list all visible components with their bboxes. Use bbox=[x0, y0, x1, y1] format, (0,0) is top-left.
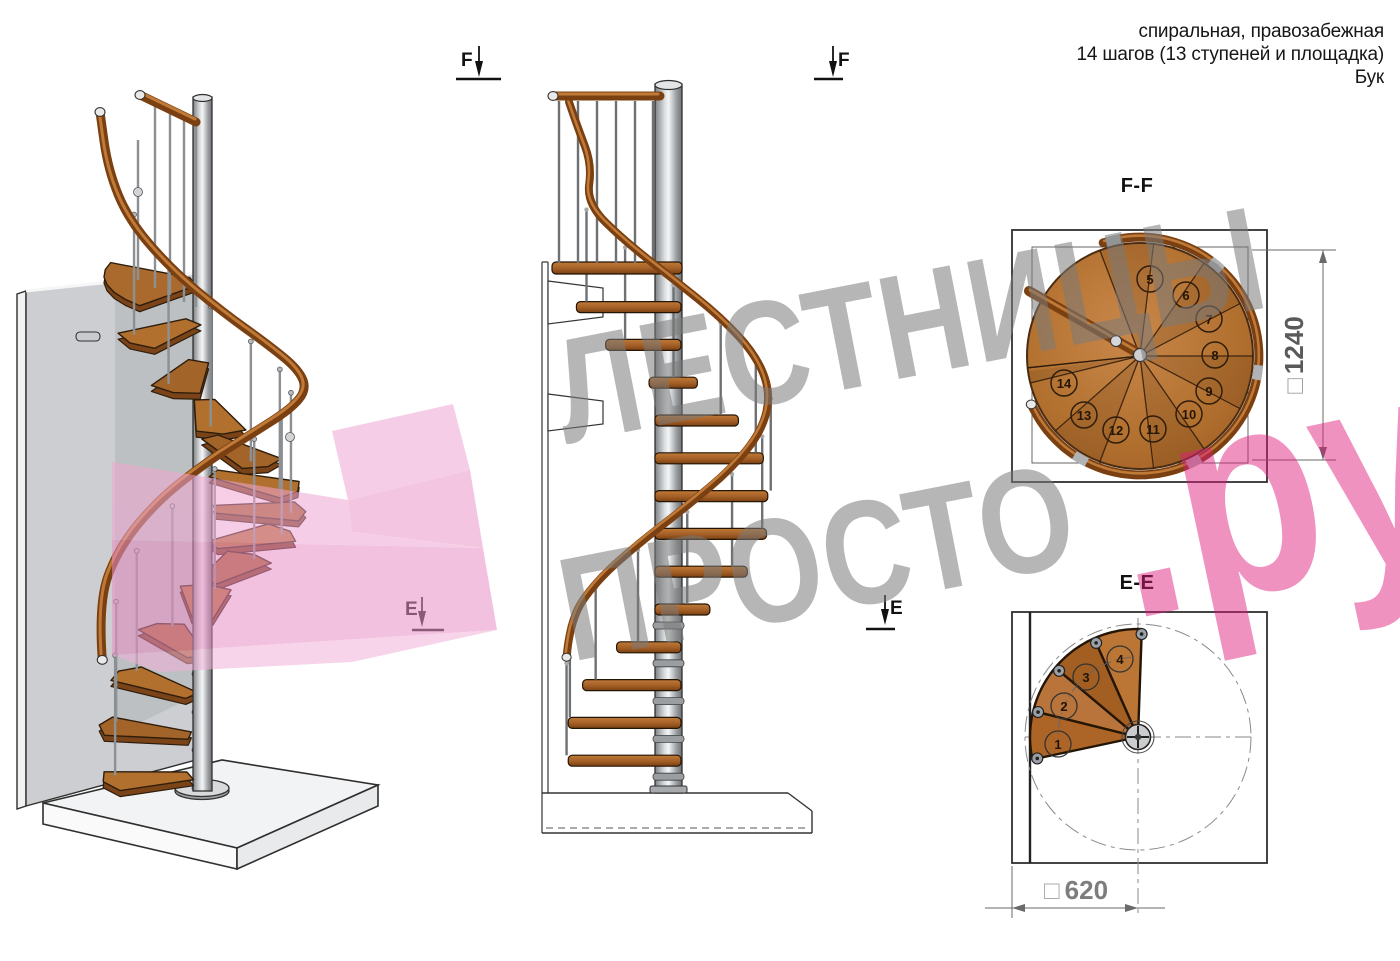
svg-text:11: 11 bbox=[1146, 422, 1160, 437]
spec-line-steps: 14 шагов (13 ступеней и площадка) bbox=[1077, 43, 1385, 66]
spec-text-block: спиральная, правозабежная 14 шагов (13 с… bbox=[1077, 20, 1385, 89]
marker-letter: E bbox=[890, 598, 903, 619]
svg-text:13: 13 bbox=[1077, 408, 1091, 423]
dim-arrow-icon bbox=[1012, 904, 1025, 912]
section-marker-f-right: F bbox=[814, 46, 850, 79]
svg-text:5: 5 bbox=[1146, 272, 1153, 287]
section-marker-e-left: E bbox=[405, 597, 444, 630]
elevation-view bbox=[542, 81, 812, 834]
plan-ff-view: F-F 5 6 7 8 9 10 11 12 13 14 □1240 bbox=[1012, 175, 1336, 482]
svg-text:□1240: □1240 bbox=[1279, 316, 1309, 394]
dim-arrow-icon bbox=[1319, 250, 1327, 263]
technical-drawing: F F E E F-F 5 6 7 8 9 10 11 bbox=[0, 0, 1400, 961]
pole-flange bbox=[1122, 721, 1154, 753]
svg-text:10: 10 bbox=[1182, 407, 1196, 422]
section-marker-e-right: E bbox=[866, 595, 903, 629]
svg-text:4: 4 bbox=[1116, 652, 1124, 667]
section-title: E-E bbox=[1120, 572, 1155, 594]
drawing-sheet: F F E E F-F 5 6 7 8 9 10 11 bbox=[0, 0, 1400, 961]
svg-text:14: 14 bbox=[1057, 376, 1072, 391]
marker-letter: F bbox=[838, 50, 850, 71]
wall-rail-bracket bbox=[76, 332, 100, 341]
dimension-1240: □1240 bbox=[1252, 250, 1336, 460]
section-title: F-F bbox=[1121, 175, 1154, 197]
marker-letter: F bbox=[461, 50, 473, 71]
svg-text:8: 8 bbox=[1211, 348, 1218, 363]
wall-outline bbox=[542, 262, 603, 833]
svg-text:2: 2 bbox=[1060, 699, 1067, 714]
dim-arrow-icon bbox=[1319, 447, 1327, 460]
marker-letter: E bbox=[405, 599, 418, 620]
dim-arrow-icon bbox=[1125, 904, 1138, 912]
svg-text:7: 7 bbox=[1205, 312, 1212, 327]
section-arrow-icon bbox=[881, 609, 889, 625]
svg-text:6: 6 bbox=[1182, 288, 1189, 303]
section-marker-f-left: F bbox=[456, 46, 501, 79]
svg-text:3: 3 bbox=[1082, 670, 1089, 685]
section-arrow-icon bbox=[475, 61, 483, 77]
section-arrow-icon bbox=[829, 61, 837, 77]
svg-text:9: 9 bbox=[1205, 384, 1212, 399]
spec-line-type: спиральная, правозабежная bbox=[1077, 20, 1385, 43]
section-arrow-icon bbox=[418, 611, 426, 627]
floor-section bbox=[542, 793, 812, 833]
svg-text:1: 1 bbox=[1054, 737, 1061, 752]
iso-3d-view bbox=[17, 91, 378, 869]
svg-text:□620: □620 bbox=[1044, 875, 1108, 905]
spec-line-material: Бук bbox=[1077, 66, 1385, 89]
plan-ee-view: E-E 1 2 3 4 □620 bbox=[985, 572, 1267, 918]
svg-text:12: 12 bbox=[1109, 423, 1123, 438]
